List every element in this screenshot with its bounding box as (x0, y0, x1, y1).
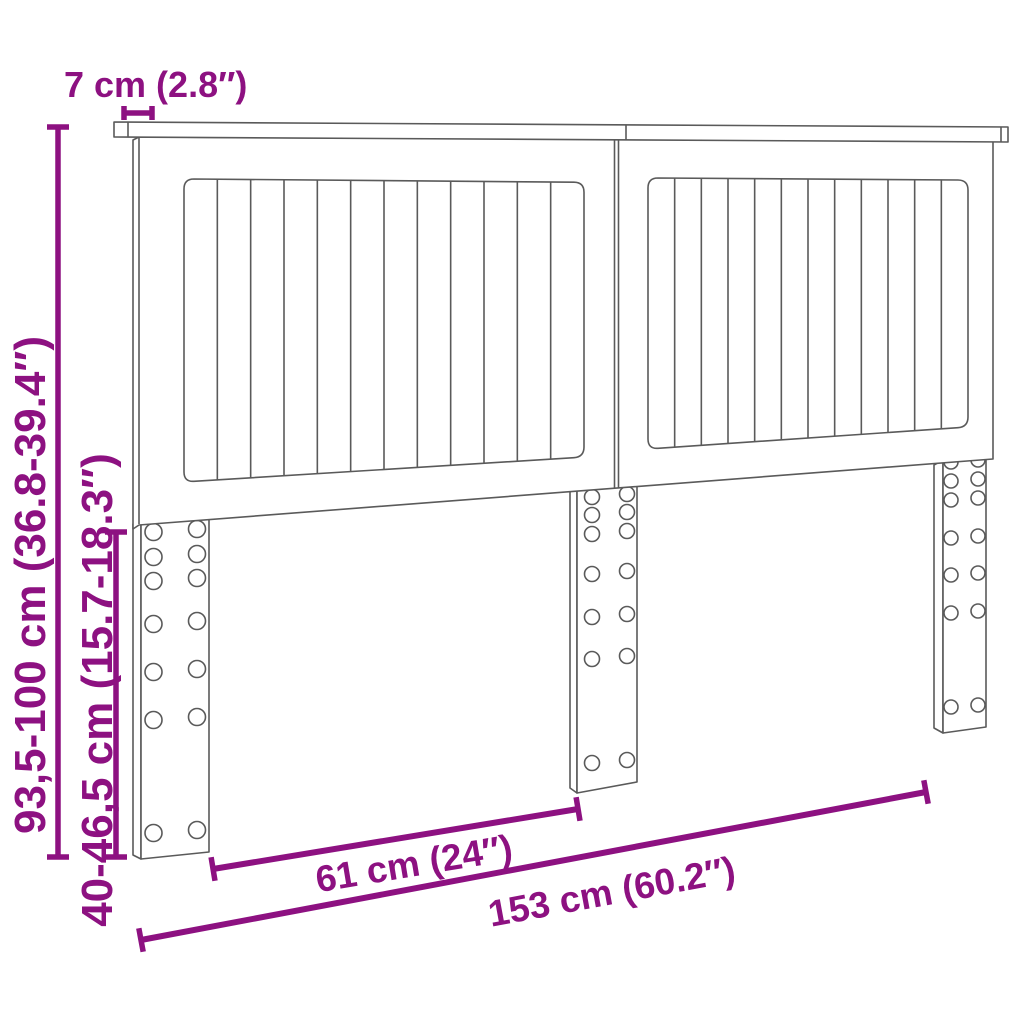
headboard-leg-middle (570, 475, 637, 793)
leg-middle-front-face (577, 475, 637, 793)
headboard-leg-right (934, 448, 986, 733)
slat-panel-left (184, 172, 584, 490)
label-total-width: 153 cm (60.2″) (485, 849, 738, 935)
leg-middle-side-face (570, 487, 577, 793)
headboard-drawing (114, 122, 1008, 859)
label-leg-height: 40-46,5 cm (15.7-18.3″) (73, 453, 122, 927)
diagram-canvas: 7 cm (2.8″) 93,5-100 cm (36.8-39.4″) 40-… (0, 0, 1024, 1024)
leg-left-side-face (133, 518, 141, 859)
headboard-leg-left (133, 502, 209, 859)
label-total-height: 93,5-100 cm (36.8-39.4″) (6, 336, 55, 834)
slat-panel-right (648, 171, 968, 458)
headboard-dimension-diagram: 7 cm (2.8″) 93,5-100 cm (36.8-39.4″) 40-… (0, 0, 1024, 1024)
label-top-rail-depth: 7 cm (2.8″) (64, 64, 247, 105)
leg-right-side-face (934, 460, 943, 733)
dimension-top-rail-depth (124, 106, 152, 120)
